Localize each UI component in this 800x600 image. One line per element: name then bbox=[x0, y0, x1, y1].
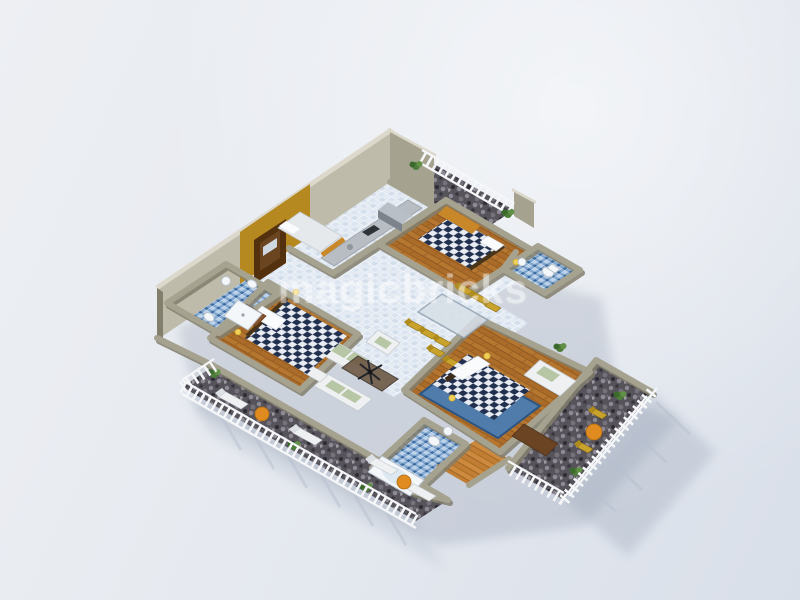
round-table-orange bbox=[397, 475, 411, 489]
bed1-lamp bbox=[293, 289, 299, 295]
master-lamp bbox=[484, 353, 490, 359]
sink bbox=[347, 244, 353, 250]
floor-plan-svg bbox=[0, 0, 800, 600]
master-lamp bbox=[449, 395, 455, 401]
washbasin-icon bbox=[222, 277, 231, 286]
washbasin-icon bbox=[518, 258, 526, 266]
round-table-orange bbox=[255, 407, 269, 421]
bed1-lamp bbox=[235, 329, 241, 335]
shower-drain bbox=[241, 313, 244, 316]
round-table-orange bbox=[586, 424, 602, 440]
washbasin-icon bbox=[444, 427, 453, 436]
floor-plan-render: magicbricks bbox=[0, 0, 800, 600]
